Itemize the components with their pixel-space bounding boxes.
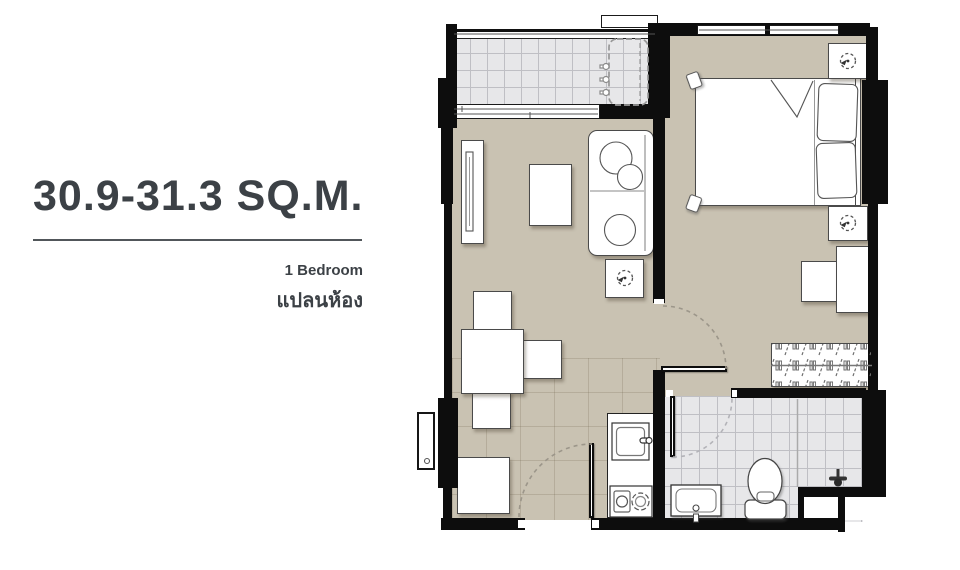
dining-chair-east bbox=[523, 340, 562, 379]
window-mullion bbox=[765, 25, 770, 35]
tv-console bbox=[461, 140, 484, 244]
balcony-floor-tiles bbox=[453, 36, 652, 106]
door-frame-cap bbox=[654, 299, 664, 304]
bed-headboard bbox=[855, 78, 861, 206]
exterior-mask bbox=[843, 497, 867, 520]
entry-door-leaf bbox=[589, 443, 594, 518]
door-frame-cap bbox=[518, 520, 525, 528]
wall-segment bbox=[591, 518, 657, 530]
wall-segment bbox=[443, 488, 452, 520]
wall-segment bbox=[600, 104, 653, 119]
wall-segment bbox=[862, 390, 886, 497]
unit-type-label: 1 Bedroom bbox=[33, 262, 363, 279]
wall-segment bbox=[653, 398, 665, 520]
unit-type-label-thai: แปลนห้อง bbox=[33, 284, 363, 316]
coffee-table bbox=[529, 164, 572, 226]
desk-chair bbox=[801, 261, 837, 302]
wall-segment bbox=[798, 497, 804, 520]
balcony-railing-window bbox=[452, 29, 657, 39]
wardrobe bbox=[771, 343, 872, 387]
storage-cabinet bbox=[457, 457, 510, 514]
wall-segment bbox=[798, 487, 865, 497]
wall-segment bbox=[862, 80, 888, 204]
wall-segment bbox=[438, 78, 457, 128]
sofa bbox=[588, 130, 654, 256]
nightstand-north bbox=[828, 43, 868, 79]
side-table bbox=[605, 259, 644, 298]
bedroom-door-leaf bbox=[661, 366, 727, 372]
balcony-sliding-door bbox=[452, 104, 600, 119]
wall-segment bbox=[438, 398, 458, 488]
wall-segment bbox=[838, 487, 845, 532]
floor-plan-page: 30.9-31.3 SQ.M. 1 Bedroom แปลนห้อง bbox=[0, 0, 960, 570]
dining-chair-south bbox=[472, 391, 511, 429]
nightstand-south bbox=[828, 206, 868, 241]
wall-segment bbox=[441, 128, 453, 204]
wall-segment bbox=[653, 370, 665, 398]
door-frame-cap bbox=[592, 520, 599, 528]
door-frame-cap bbox=[732, 390, 737, 397]
ac-ledge bbox=[417, 412, 435, 470]
wall-segment bbox=[653, 118, 665, 303]
wall-segment bbox=[731, 388, 866, 398]
wall-segment bbox=[655, 518, 845, 530]
dining-chair-north bbox=[473, 291, 512, 331]
kitchen-counter bbox=[607, 413, 655, 518]
double-bed bbox=[695, 78, 858, 206]
area-range-title: 30.9-31.3 SQ.M. bbox=[33, 172, 363, 221]
wall-segment bbox=[868, 204, 878, 390]
bathroom-door-leaf bbox=[670, 396, 675, 457]
unit-info-block: 30.9-31.3 SQ.M. 1 Bedroom แปลนห้อง bbox=[33, 172, 363, 316]
divider-line bbox=[33, 239, 362, 241]
wall-segment bbox=[446, 24, 457, 80]
wall-segment bbox=[866, 27, 878, 80]
service-shaft bbox=[804, 497, 838, 519]
wall-segment bbox=[441, 518, 525, 530]
wall-segment bbox=[444, 204, 452, 398]
dining-table bbox=[461, 329, 524, 394]
